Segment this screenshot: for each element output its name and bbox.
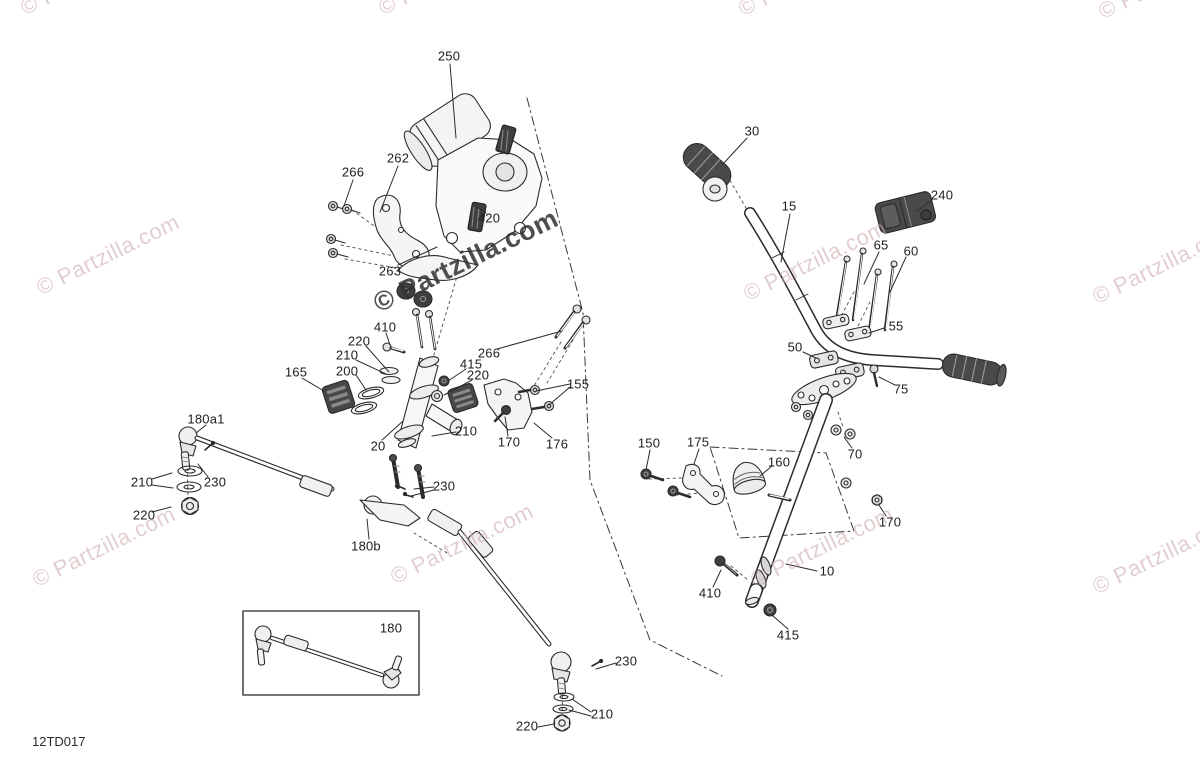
part-label-180a1: 180a1	[187, 412, 224, 427]
part-label-220: 220	[467, 368, 489, 383]
part-label-410: 410	[374, 320, 396, 335]
part-label-55: 55	[889, 319, 904, 334]
part-label-420: 420	[478, 211, 500, 226]
part-label-176: 176	[546, 437, 568, 452]
part-label-20: 20	[371, 439, 386, 454]
part-label-155: 155	[567, 377, 589, 392]
parts-diagram-page: © Partzilla.com© Partzilla.com© Partzill…	[0, 0, 1200, 776]
eps-unit-art	[399, 89, 542, 252]
part-label-230: 230	[433, 479, 455, 494]
part-label-165: 165	[285, 365, 307, 380]
part-label-170: 170	[879, 515, 901, 530]
part-label-263: 263	[379, 264, 401, 279]
part-label-10: 10	[820, 564, 835, 579]
part-label-60: 60	[904, 244, 919, 259]
part-label-415: 415	[777, 628, 799, 643]
part-label-15: 15	[782, 199, 797, 214]
part-label-180b: 180b	[351, 539, 381, 554]
part-label-266: 266	[342, 165, 364, 180]
part-label-65: 65	[874, 238, 889, 253]
part-label-210: 210	[336, 348, 358, 363]
part-label-220: 220	[516, 719, 538, 734]
part-label-250: 250	[438, 49, 460, 64]
part-label-240: 240	[931, 188, 953, 203]
mount-block-art	[874, 190, 937, 234]
part-label-210: 210	[131, 475, 153, 490]
part-label-175: 175	[687, 435, 709, 450]
part-label-210: 210	[591, 707, 613, 722]
part-label-70: 70	[848, 447, 863, 462]
part-label-220: 220	[348, 334, 370, 349]
diagram-code: 12TD017	[32, 734, 85, 749]
part-label-150: 150	[638, 436, 660, 451]
part-label-30: 30	[745, 124, 760, 139]
part-label-220: 220	[133, 508, 155, 523]
part-label-180: 180	[380, 621, 402, 636]
part-label-75: 75	[894, 382, 909, 397]
part-label-200: 200	[336, 364, 358, 379]
part-label-410: 410	[699, 586, 721, 601]
part-label-210: 210	[455, 424, 477, 439]
part-label-170: 170	[498, 435, 520, 450]
diagram-art	[0, 0, 1200, 776]
part-label-262: 262	[387, 151, 409, 166]
part-label-50: 50	[788, 340, 803, 355]
handlebar-art	[678, 138, 1008, 388]
part-label-230: 230	[615, 654, 637, 669]
part-label-160: 160	[768, 455, 790, 470]
part-label-230: 230	[204, 475, 226, 490]
